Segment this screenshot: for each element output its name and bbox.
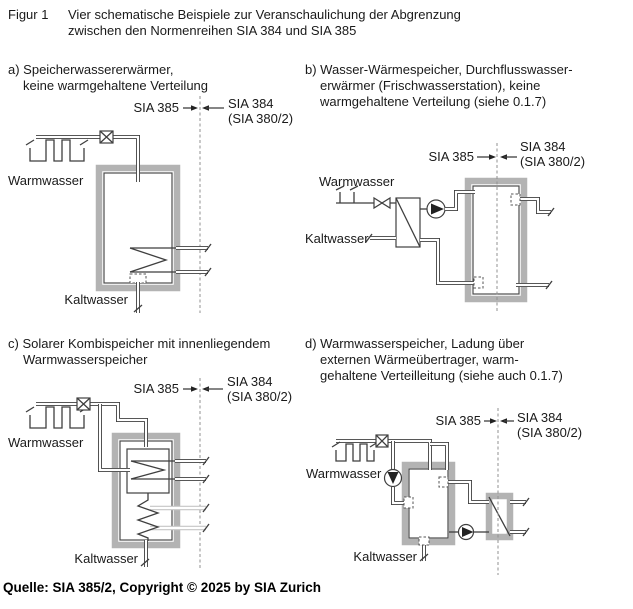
tap-icon	[26, 407, 34, 412]
sensor-port-d-right	[439, 477, 448, 487]
boundary-marker-c: SIA 385 SIA 384 (SIA 380/2)	[133, 374, 292, 404]
arrow-right-icon	[191, 386, 198, 392]
figure-title-line2: zwischen den Normenreihen SIA 384 und SI…	[68, 23, 461, 39]
sia380-label-d: (SIA 380/2)	[517, 425, 582, 440]
sensor-port-b-top	[511, 194, 520, 205]
source-line: Quelle: SIA 385/2, Copyright © 2025 by S…	[3, 580, 321, 595]
sia384-label-a: SIA 384	[228, 96, 274, 111]
boundary-marker-a: SIA 385 SIA 384 (SIA 380/2)	[133, 96, 293, 126]
kaltwasser-label-b: Kaltwasser	[305, 231, 369, 246]
valve-icon	[77, 398, 90, 410]
boundary-marker-d: SIA 385 SIA 384 (SIA 380/2)	[435, 410, 582, 440]
sia380-label-b: (SIA 380/2)	[520, 154, 585, 169]
sensor-port-d-left	[404, 497, 413, 508]
sia384-label-b: SIA 384	[520, 139, 566, 154]
figure-page: Figur 1 Vier schematische Beispiele zur …	[0, 0, 633, 609]
diagram-c: SIA 385 SIA 384 (SIA 380/2)	[0, 333, 308, 578]
caption-a-line1: a) Speicherwassererwärmer,	[8, 62, 208, 78]
caption-b-line1: b) Wasser-Wärmespeicher, Durchflusswasse…	[305, 62, 573, 78]
figure-title-line1: Vier schematische Beispiele zur Veransch…	[68, 7, 461, 23]
kaltwasser-label-d: Kaltwasser	[353, 549, 417, 564]
boundary-marker-b: SIA 385 SIA 384 (SIA 380/2)	[428, 139, 585, 169]
figure-number: Figur 1	[8, 7, 68, 39]
circulation-pump-icon	[385, 470, 402, 487]
arrow-right-icon	[490, 418, 497, 424]
arrow-right-icon	[489, 154, 496, 160]
figure-header: Figur 1 Vier schematische Beispiele zur …	[8, 7, 461, 39]
warmwasser-label-d: Warmwasser	[306, 466, 382, 481]
sia380-label-a: (SIA 380/2)	[228, 111, 293, 126]
charging-pump-icon	[459, 525, 474, 540]
diagram-d: SIA 385 SIA 384 (SIA 380/2)	[305, 333, 633, 578]
sensor-port-d-bottom	[419, 537, 429, 545]
sensor-port-b-bottom	[474, 277, 483, 288]
valve-icon	[100, 131, 113, 143]
warmwasser-label-b: Warmwasser	[319, 174, 395, 189]
arrow-right-icon	[191, 105, 198, 111]
sia384-label-d: SIA 384	[517, 410, 563, 425]
sia384-label-c: SIA 384	[227, 374, 273, 389]
heat-exchanger-b	[396, 198, 420, 247]
sia385-label-d: SIA 385	[435, 413, 481, 428]
sia380-label-c: (SIA 380/2)	[227, 389, 292, 404]
tap-icon	[80, 140, 88, 145]
tap-icon	[26, 140, 34, 145]
figure-title: Vier schematische Beispiele zur Veransch…	[68, 7, 461, 39]
sensor-port-a	[130, 274, 146, 283]
tapping-points-c	[30, 407, 84, 428]
diagram-a: SIA 385 SIA 384 (SIA 380/2)	[0, 88, 308, 333]
diagram-b: SIA 385 SIA 384 (SIA 380/2)	[305, 88, 633, 333]
valve-icon	[374, 198, 390, 208]
external-heat-exchanger-d	[489, 496, 510, 537]
tapping-points-d	[336, 444, 374, 461]
kaltwasser-label-c: Kaltwasser	[74, 551, 138, 566]
kaltwasser-label-a: Kaltwasser	[64, 292, 128, 307]
warmwasser-label-a: Warmwasser	[8, 173, 84, 188]
pump-icon	[427, 200, 445, 218]
sia385-label-a: SIA 385	[133, 100, 179, 115]
tapping-points-a	[30, 140, 84, 161]
sia385-label-c: SIA 385	[133, 381, 179, 396]
warmwasser-label-c: Warmwasser	[8, 435, 84, 450]
valve-icon	[376, 435, 388, 447]
sia385-label-b: SIA 385	[428, 149, 474, 164]
